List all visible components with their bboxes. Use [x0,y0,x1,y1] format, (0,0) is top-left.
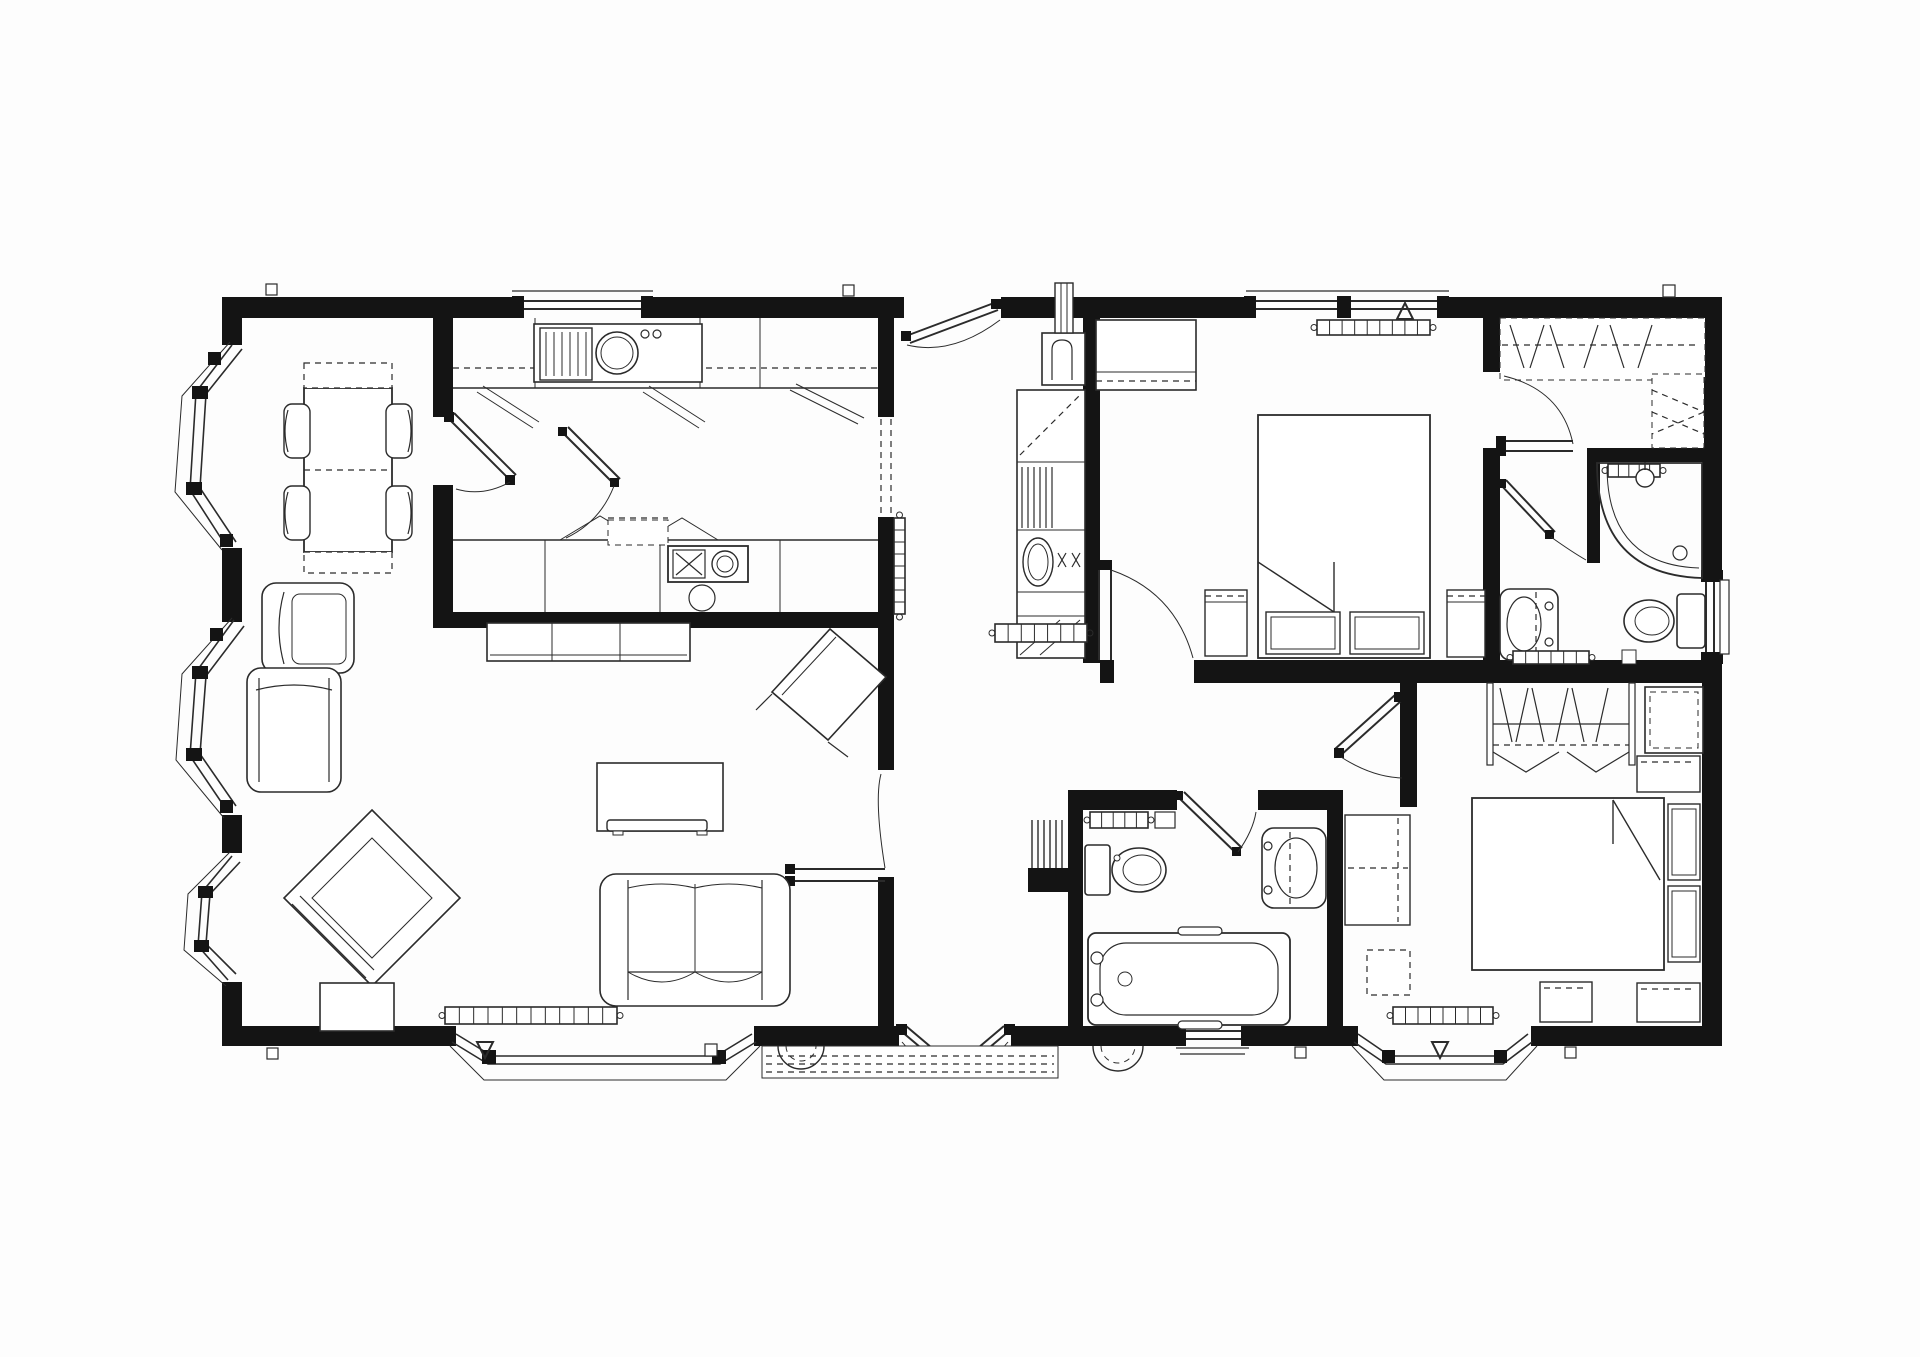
wardrobe-side [1629,683,1635,765]
larder-door-swing [566,486,614,538]
wardrobe-door-swing [1504,376,1573,444]
larder-door-leaf [568,427,620,479]
corner-unit-mark [790,390,858,424]
bathroom-cabinet [1155,812,1175,828]
floor-plan-page [0,0,1920,1357]
bathroom-door-leaf [1178,797,1236,853]
door-leaf-end [785,864,795,874]
door-leaf-end [610,478,619,487]
corner-cabinet-mark [756,694,772,710]
door-step [1093,1046,1143,1071]
decking [762,1046,1058,1078]
ensuite-radiator [1602,464,1666,477]
bathroom-door-leaf [1184,792,1242,848]
vent [1295,1047,1306,1058]
bed2-pillow [1672,891,1696,957]
hanger [1572,688,1584,742]
door-leaf-end [1096,560,1112,570]
boiler [1042,333,1085,385]
bathroom-radiator [1084,812,1154,828]
window-jamb [1241,1026,1253,1046]
bay-joint [192,386,208,399]
bay-joint [194,940,209,952]
left-wall [222,297,242,345]
window-mullion [1337,296,1351,318]
bottom-wall [1245,1026,1352,1046]
bottom-wall [1015,1026,1180,1046]
rear-door-jamb [892,297,904,318]
kitchen-west-wall [433,485,453,612]
basin-tap [1264,886,1272,894]
corner-unit-mark [483,386,539,422]
door-leaf-end [1394,692,1404,702]
ensuite-radiator [1507,651,1595,664]
sink-bowl [601,337,633,369]
floor-plan-drawing [0,0,1920,1357]
bed2-pillow [1672,809,1696,875]
dressing-stool [1367,950,1410,995]
door-leaf-end [1004,1024,1015,1035]
corner-unit-mark [643,392,699,428]
sink-tap [653,330,661,338]
bottom-wall [760,1026,895,1046]
bay-joint [220,534,233,547]
hall-radiator [894,512,905,620]
bedside-table [1205,590,1247,656]
hall-west-wall [878,877,894,1026]
cooker-hood [608,520,668,545]
tv-foot [613,831,623,835]
door-leaf-end [991,299,1001,309]
bottom-wall [1537,1026,1722,1046]
left-wall [222,548,242,622]
shower-drain [1673,546,1687,560]
kitchen-door-leaf [448,418,510,480]
ensuite-toilet-cistern [1677,594,1705,648]
utility-unit [1017,390,1085,658]
bifold-door-mark [1493,752,1559,772]
bedroom2-door-leaf [1335,695,1395,749]
small-left-bay-outer [184,852,230,986]
lower-left-bay-frame [200,626,244,806]
toilet-bowl [1123,855,1161,885]
bed2 [1472,798,1664,970]
window-jamb [641,296,653,318]
dining-table-leaf [304,363,392,388]
living-room-door-swing [878,774,885,868]
utility [894,283,1093,658]
basin-tap [1545,602,1553,610]
vent [705,1044,717,1056]
top-wall [1443,297,1722,318]
ensuite-toilet-bowl [1635,607,1669,635]
room-entrance-hall [894,790,1068,1026]
vent [266,284,277,295]
corner-unit-mark [477,392,533,428]
door-leaf-end [1497,479,1506,488]
rear-door-leaf [906,303,994,336]
bedroom2-furniture [1345,683,1703,1022]
vent [267,1048,278,1059]
walkin-wardrobe [1500,318,1705,380]
corner-cabinet [772,629,886,740]
rear-door-swing [907,320,1000,348]
corner-cabinet-mark [828,742,848,757]
tv-screen [607,820,707,831]
bedroom1-east-wall [1483,315,1500,372]
corner-unit-mark [649,386,705,422]
bedroom1-door-swing [1111,570,1193,658]
small-left-bay-frame [206,862,240,974]
basin-tap [1545,638,1553,646]
bath-grip [1178,927,1222,935]
bedside-table [1447,590,1485,657]
tv-foot [697,831,707,835]
hanger [1516,688,1528,742]
door-leaf-end [558,427,567,436]
utility-basin [1028,544,1048,580]
shower-head [1636,469,1654,487]
bathroom-north-wall [1068,790,1177,810]
rear-door-jamb [1001,297,1013,318]
bedroom1-radiator [1311,320,1436,335]
bathroom-east-wall [1327,790,1343,1026]
bay-joint [186,482,202,495]
bathroom-basin-bowl [1275,838,1317,898]
larder-door-leaf [562,432,614,484]
bath-tap [1091,952,1103,964]
door-leaf-end [901,331,911,341]
toilet-flush [1114,855,1120,861]
left-wall [222,982,242,1026]
hall-west-wall [878,517,894,770]
top-wall [222,297,520,318]
hanger [1596,688,1608,742]
bedroom2-door-swing [1341,757,1402,778]
upper-left-bay-frame [190,345,232,546]
bay-joint [220,800,233,813]
right-wall [1702,657,1722,1046]
armchair [247,668,341,792]
bay-joint [210,628,223,641]
bedroom2-door-leaf [1341,701,1401,755]
toilet-roll-holder [1622,650,1636,664]
top-wall [1007,297,1250,318]
dining-table-leaf [304,552,392,573]
kitchen-west-wall [433,315,453,417]
sink-tap [641,330,649,338]
basin-tap [1264,842,1272,850]
bed1-pillow [1355,617,1419,649]
tall-cupboard [1650,692,1698,748]
top-wall [645,297,900,318]
kitchen-door-leaf [454,413,516,475]
door-leaf-end [1232,847,1241,856]
door-leaf-end [1496,436,1506,456]
airing-cupboard [1028,868,1068,892]
bay-joint [1382,1050,1395,1063]
bed1-pillow [1271,617,1335,649]
left-wall [222,815,242,853]
bay-joint [208,352,221,365]
bedroom2-bay-radiator [1387,1007,1499,1024]
shower-door-leaf [1506,480,1555,532]
bath-tap [1091,994,1103,1006]
ensuite1 [1496,318,1705,664]
living-bay-radiator [439,1007,623,1024]
hall-west-wall [878,315,894,417]
bay-joint [192,666,208,679]
bay-joint [198,886,213,898]
wardrobe-cupboard [1096,320,1196,390]
window-jamb [512,296,524,318]
dressing-table [1345,815,1410,925]
ensuite-divider-stub [1587,448,1600,563]
window-jamb [1244,296,1256,318]
armchair-seat [292,594,346,664]
hanger [1500,688,1512,742]
side-table [320,983,394,1031]
corridor-radiator [989,624,1093,642]
door-leaf-end [1174,791,1183,800]
window-opening-marker [1397,303,1413,319]
kitchen-door-swing [456,482,510,492]
door-leaf-end [1334,748,1344,758]
vent [1663,285,1675,297]
bath-grip [1178,1021,1222,1029]
small-left-bay-frame [198,856,232,980]
window-jamb [1437,296,1449,318]
bay-joint [186,748,202,761]
kitchen [444,318,878,612]
door-leaf-end [444,412,454,422]
sink-drainer [540,328,592,380]
hanger [1556,688,1568,742]
boiler-flue [1055,283,1073,333]
linen-shelves [1652,374,1704,448]
bathroom-west-wall [1068,810,1083,1026]
shower-door-leaf [1500,484,1549,536]
bifold-door-mark [1567,752,1629,772]
door-step [1101,1046,1135,1063]
shower-door-swing [1551,537,1586,560]
vent [1565,1047,1576,1058]
bedroom1-south-wall [1100,660,1114,683]
bedroom2-bay-jamb [1531,1026,1543,1046]
rear-door-leaf [910,310,998,343]
hanger [1532,688,1544,742]
oven-knob [689,585,715,611]
hob-burner-right [717,556,733,572]
bath-drain [1118,972,1132,986]
bay-joint [1494,1050,1507,1063]
bedroom2-west-wall [1400,660,1417,807]
living-dining-furniture [247,363,886,1031]
vent [843,285,854,296]
wardrobe-side [1487,683,1493,765]
ensuite-divider-wall [1600,448,1722,462]
toilet-cistern [1085,845,1110,895]
door-leaf-end [896,1024,907,1035]
bedroom1-furniture [1096,320,1485,658]
corner-unit-mark [796,384,864,418]
shower-room-window-sill [1720,580,1729,654]
